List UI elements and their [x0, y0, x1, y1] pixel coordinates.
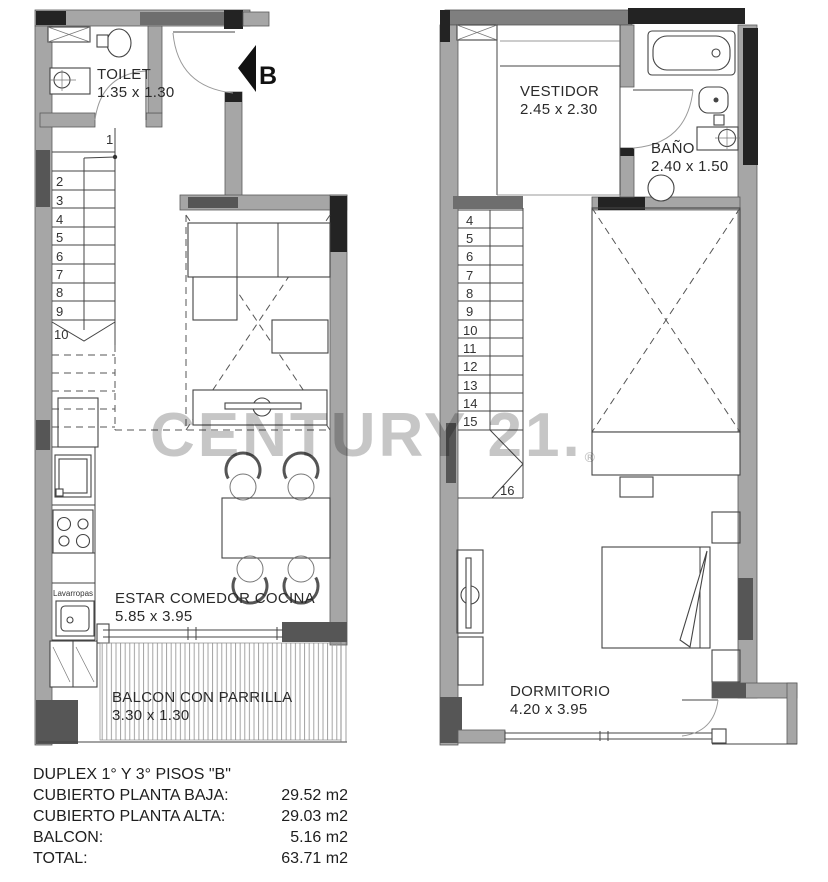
bedroom-window [505, 731, 713, 741]
fridge [55, 455, 91, 497]
stair-num: 10 [54, 327, 68, 342]
stair-num: 7 [466, 268, 473, 283]
summary-label: BALCON: [33, 827, 103, 848]
balcony-label: BALCON CON PARRILLA [112, 689, 292, 706]
bidet [699, 87, 728, 113]
entry-door [173, 32, 235, 93]
summary-label: CUBIERTO PLANTA BAJA: [33, 785, 229, 806]
stair-num: 9 [56, 304, 63, 319]
stair-num: 5 [466, 231, 473, 246]
entry-arrow-icon [238, 45, 256, 92]
duct-x-icon [457, 25, 497, 40]
sofa [188, 223, 330, 320]
summary-label: CUBIERTO PLANTA ALTA: [33, 806, 225, 827]
stair-num: 11 [463, 341, 477, 356]
vestidor-room: VESTIDOR 2.45 x 2.30 [457, 25, 620, 195]
vestidor-dims: 2.45 x 2.30 [520, 101, 598, 118]
balcony-door [682, 700, 726, 743]
plan-title: DUPLEX 1° Y 3° PISOS "B" [33, 764, 348, 785]
summary-row: CUBIERTO PLANTA ALTA: 29.03 m2 [33, 806, 348, 827]
stair-num: 4 [56, 212, 63, 227]
duct-x-icon [48, 27, 90, 42]
side-table [272, 320, 328, 353]
kitchen: Lavarropas [52, 398, 98, 640]
stair-num: 13 [463, 378, 477, 393]
registered-mark-icon: ® [585, 449, 595, 465]
toilet-dims: 1.35 x 1.30 [97, 84, 175, 101]
bathroom: BAÑO 2.40 x 1.50 [633, 31, 740, 201]
stair-num: 10 [463, 323, 477, 338]
stair-num: 6 [466, 249, 473, 264]
nightstand [712, 512, 740, 543]
watermark: CENTURY 21.® [150, 400, 595, 471]
bath-accessory [714, 115, 724, 125]
understair-cabinet [58, 398, 98, 447]
watermark-text: CENTURY 21. [150, 401, 583, 470]
tv-unit [457, 550, 483, 633]
stair-num: 8 [56, 285, 63, 300]
summary-value: 63.71 m2 [281, 848, 348, 869]
bedroom-dims: 4.20 x 3.95 [510, 701, 588, 718]
summary-row: TOTAL: 63.71 m2 [33, 848, 348, 869]
stairs-projection-dashed [52, 345, 115, 430]
balcony-window [97, 624, 283, 643]
entry-letter: B [259, 62, 277, 90]
bedroom-label: DORMITORIO [510, 683, 610, 700]
summary-row: CUBIERTO PLANTA BAJA: 29.52 m2 [33, 785, 348, 806]
void-over-living [592, 208, 740, 432]
toilet-label: TOILET [97, 66, 151, 83]
floorplan-page: TOILET 1.35 x 1.30 B [0, 0, 828, 882]
bedroom: DORMITORIO 4.20 x 3.95 [457, 432, 740, 743]
summary-label: TOTAL: [33, 848, 88, 869]
stair-num: 1 [106, 132, 113, 147]
area-summary: DUPLEX 1° Y 3° PISOS "B" CUBIERTO PLANTA… [33, 764, 348, 869]
stair-num: 7 [56, 267, 63, 282]
parrilla-grill [50, 641, 97, 687]
desk [592, 432, 740, 475]
sink-fixture [50, 68, 90, 94]
wc-fixture [97, 29, 131, 57]
summary-value: 29.03 m2 [281, 806, 348, 827]
stair-num: 2 [56, 174, 63, 189]
wc-fixture [648, 175, 674, 201]
summary-row: BALCON: 5.16 m2 [33, 827, 348, 848]
side-cabinet [458, 637, 483, 685]
stove [53, 510, 93, 553]
bathtub [648, 31, 735, 75]
stair-num: 5 [56, 230, 63, 245]
bed [602, 547, 710, 648]
balcony-dims: 3.30 x 1.30 [112, 707, 190, 724]
bath-label: BAÑO [651, 140, 695, 157]
vanity-sink [697, 127, 740, 150]
stair-num: 16 [500, 483, 514, 498]
dining-table [222, 453, 330, 603]
bath-dims: 2.40 x 1.50 [651, 158, 729, 175]
living-label: ESTAR COMEDOR COCINA [115, 590, 315, 607]
stair-num: 9 [466, 304, 473, 319]
stair-num: 3 [56, 193, 63, 208]
stair-num: 4 [466, 213, 473, 228]
laundry-label: Lavarropas [53, 589, 93, 598]
stair-num: 12 [463, 359, 477, 374]
stair-num: 6 [56, 249, 63, 264]
nightstand [712, 650, 740, 682]
vestidor-label: VESTIDOR [520, 83, 599, 100]
living-dims: 5.85 x 3.95 [115, 608, 193, 625]
stair-num: 8 [466, 286, 473, 301]
stool [620, 477, 653, 497]
upper-floor-plan: VESTIDOR 2.45 x 2.30 [440, 8, 797, 745]
stairs-lower: 1 2 3 4 5 6 7 8 9 10 [52, 128, 117, 430]
summary-value: 29.52 m2 [281, 785, 348, 806]
washing-machine [56, 601, 94, 636]
summary-value: 5.16 m2 [290, 827, 348, 848]
entry: B [173, 32, 277, 93]
lower-floor-plan: TOILET 1.35 x 1.30 B [35, 10, 347, 745]
